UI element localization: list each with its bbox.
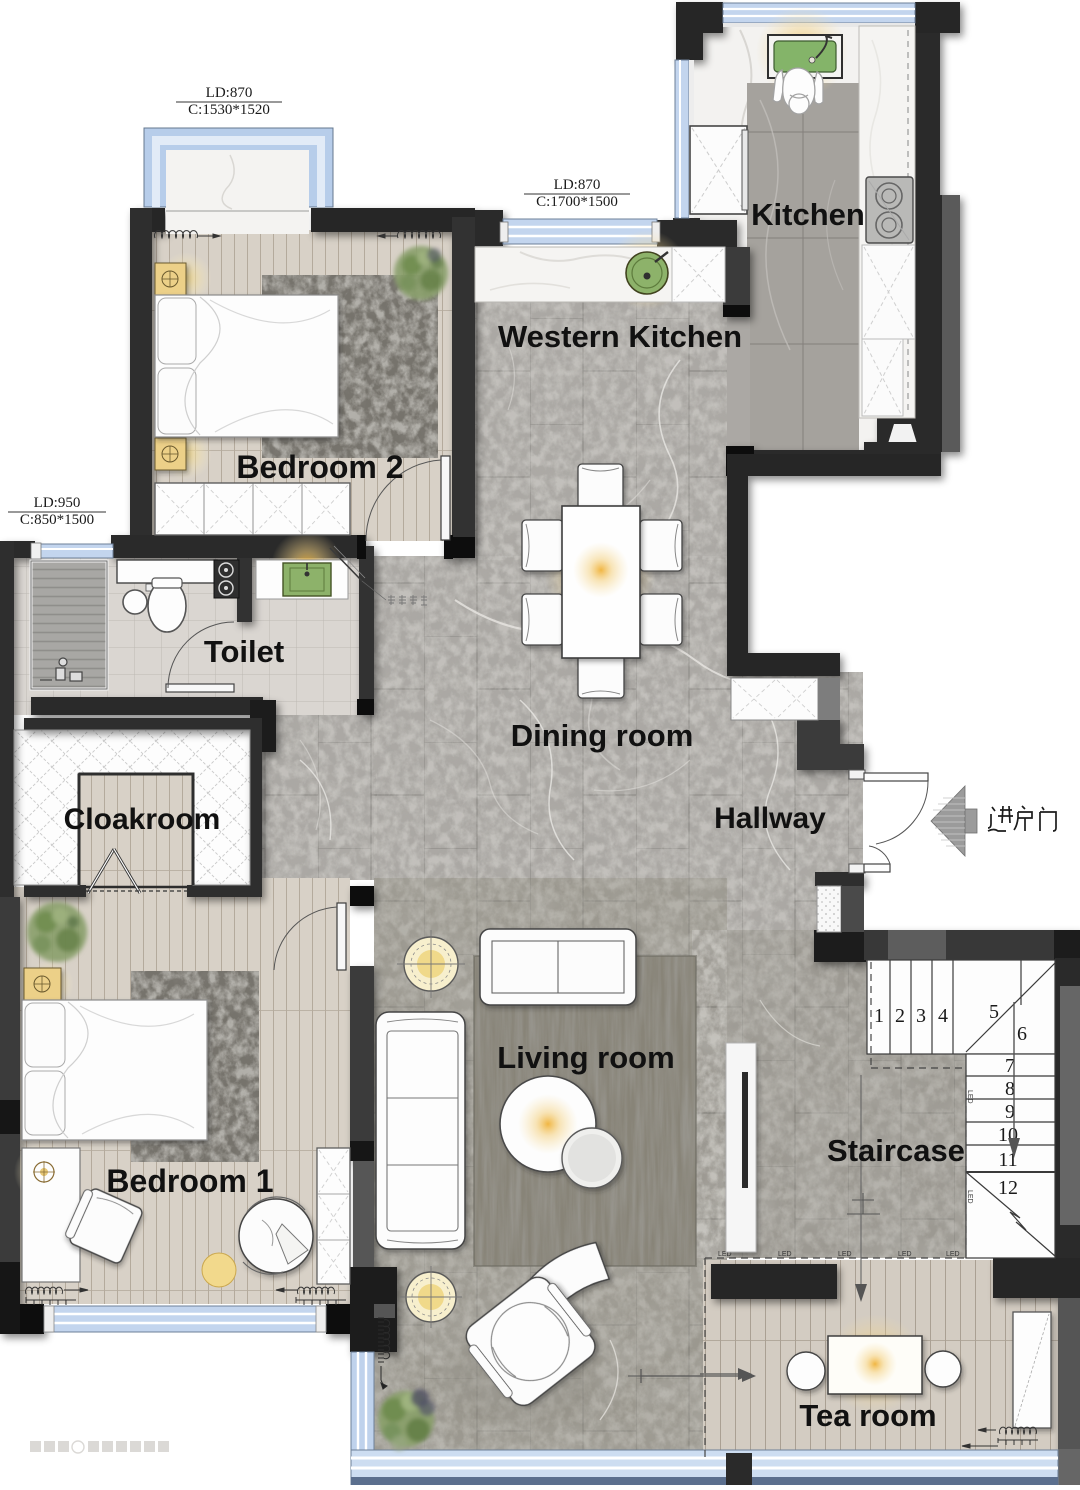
- svg-text:LED: LED: [966, 1190, 973, 1204]
- svg-text:Bedroom 1: Bedroom 1: [106, 1163, 273, 1199]
- svg-text:LED: LED: [838, 1251, 852, 1258]
- svg-text:Living room: Living room: [497, 1040, 674, 1075]
- svg-text:Dining room: Dining room: [511, 718, 694, 753]
- svg-text:Hallway: Hallway: [714, 802, 826, 835]
- svg-text:12: 12: [998, 1177, 1018, 1199]
- svg-text:Toilet: Toilet: [204, 634, 284, 669]
- svg-text:Bedroom 2: Bedroom 2: [236, 449, 403, 485]
- svg-text:LED: LED: [778, 1251, 792, 1258]
- svg-text:C:850*1500: C:850*1500: [20, 512, 94, 528]
- svg-text:2: 2: [895, 1005, 905, 1027]
- svg-text:LD:950: LD:950: [34, 495, 81, 511]
- svg-text:Western Kitchen: Western Kitchen: [498, 319, 742, 354]
- svg-text:5: 5: [989, 1001, 999, 1023]
- svg-text:LD:870: LD:870: [554, 177, 601, 193]
- svg-text:LD:870: LD:870: [206, 85, 253, 101]
- svg-text:1: 1: [874, 1005, 884, 1027]
- svg-text:C:1700*1500: C:1700*1500: [536, 194, 618, 210]
- svg-text:6: 6: [1017, 1023, 1027, 1045]
- svg-text:Staircase: Staircase: [827, 1133, 965, 1168]
- svg-text:Kitchen: Kitchen: [751, 197, 865, 232]
- svg-text:Tea room: Tea room: [799, 1398, 936, 1433]
- svg-text:Cloakroom: Cloakroom: [64, 803, 221, 836]
- svg-text:4: 4: [938, 1005, 948, 1027]
- svg-text:LED: LED: [946, 1251, 960, 1258]
- svg-text:C:1530*1520: C:1530*1520: [188, 102, 270, 118]
- svg-text:LED: LED: [898, 1251, 912, 1258]
- svg-text:3: 3: [916, 1005, 926, 1027]
- svg-text:LED: LED: [966, 1090, 973, 1104]
